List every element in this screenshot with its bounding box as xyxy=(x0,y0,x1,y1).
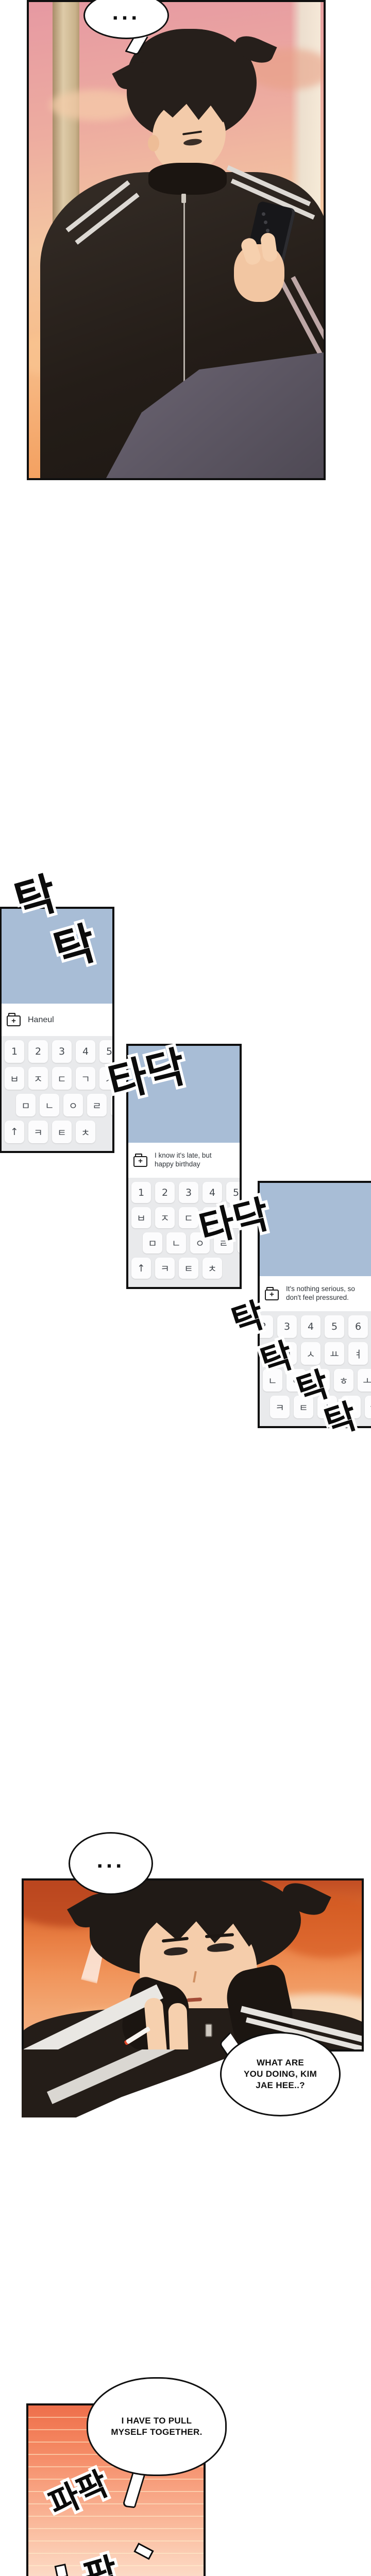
keyboard-key: 2 xyxy=(28,1040,48,1063)
keyboard-row-numbers: 12345 xyxy=(5,1040,112,1063)
keyboard-key: ㄷ xyxy=(52,1067,72,1090)
keyboard-key: ㅌ xyxy=(179,1258,198,1279)
zipper-pull xyxy=(181,194,186,203)
attachment-folder-icon xyxy=(7,1015,21,1026)
speech-bubble-ellipsis-2: ... xyxy=(69,1832,153,1895)
korean-keyboard: 12345 ㅂㅈㄷㄱㅅ ㅁㄴㅇㄹㅎ ↑ㅋㅌㅊ xyxy=(2,1036,112,1151)
message-input-bar: It's nothing serious, so don't feel pres… xyxy=(260,1276,371,1311)
keyboard-key: 4 xyxy=(301,1315,321,1338)
keyboard-key: ㅌ xyxy=(52,1121,72,1143)
keyboard-key: ㅛ xyxy=(325,1342,344,1365)
keyboard-key: 2 xyxy=(155,1182,175,1203)
panel-sunset-wide xyxy=(27,0,326,480)
keyboard-key: ㅗ xyxy=(358,1369,371,1392)
keyboard-key: ㅠ xyxy=(365,1396,371,1418)
keyboard-key: ㅋ xyxy=(270,1396,290,1418)
keyboard-key: ㄱ xyxy=(76,1067,95,1090)
keyboard-key: ㅋ xyxy=(28,1121,48,1143)
jacket-overflow xyxy=(22,2049,248,2117)
keyboard-row: ㅁㄴㅇㄹㅎ xyxy=(16,1094,112,1116)
zipper-pull xyxy=(205,2024,212,2037)
typed-message: I know it's late, but happy birthday xyxy=(155,1151,212,1169)
keyboard-key: ㅂ xyxy=(5,1067,24,1090)
keyboard-key: 1 xyxy=(5,1040,24,1063)
keyboard-key: ㅎ xyxy=(334,1369,353,1392)
keyboard-key: ㄹ xyxy=(87,1094,107,1116)
character-ear xyxy=(148,135,159,151)
keyboard-key: ㄴ xyxy=(166,1232,186,1253)
panel-face-closeup xyxy=(22,1878,364,2052)
hand-finger xyxy=(168,2003,189,2052)
speech-bubble-question: WHAT ARE YOU DOING, KIM JAE HEE..? xyxy=(220,2032,341,2116)
jacket-collar xyxy=(148,163,227,195)
typed-message: It's nothing serious, so don't feel pres… xyxy=(286,1285,355,1302)
keyboard-key: ㅋ xyxy=(155,1258,175,1279)
keyboard-key: ↑ xyxy=(5,1121,24,1143)
keyboard-row-shift: ↑ㅋㅌㅊ xyxy=(5,1121,112,1143)
keyboard-key: ㅁ xyxy=(16,1094,36,1116)
phone-camera-dots xyxy=(262,212,265,216)
keyboard-key: 1 xyxy=(131,1182,151,1203)
keyboard-row-shift: ↑ㅋㅌㅊ xyxy=(131,1258,240,1279)
ellipsis-text: ... xyxy=(97,1857,125,1863)
keyboard-key: ↑ xyxy=(131,1258,151,1279)
keyboard-key: ㅈ xyxy=(28,1067,48,1090)
message-input-bar: I know it's late, but happy birthday xyxy=(128,1143,240,1178)
attachment-folder-icon xyxy=(265,1290,279,1300)
attachment-folder-icon xyxy=(133,1156,147,1167)
keyboard-row: ㅂㅈㄷㄱㅅ xyxy=(5,1067,112,1090)
keyboard-key: 3 xyxy=(52,1040,72,1063)
message-input-bar: Haneul xyxy=(2,1004,112,1036)
keyboard-key: ㅈ xyxy=(155,1207,175,1228)
webtoon-page: ... 탁탁 탁탁 Haneul 12345 ㅂㅈㄷㄱㅅ ㅁㄴㅇㄹㅎ ↑ㅋㅌㅊ … xyxy=(0,0,371,2576)
keyboard-key: ㅊ xyxy=(76,1121,95,1143)
keyboard-key: 5 xyxy=(325,1315,344,1338)
keyboard-key: 6 xyxy=(348,1315,368,1338)
speech-bubble-resolve: I HAVE TO PULL MYSELF TOGETHER. xyxy=(87,2377,227,2476)
typed-message: Haneul xyxy=(28,1015,54,1025)
keyboard-key: ㅇ xyxy=(63,1094,83,1116)
ellipsis-text: ... xyxy=(112,9,141,15)
keyboard-key: 4 xyxy=(76,1040,95,1063)
keyboard-key: ㄴ xyxy=(40,1094,59,1116)
keyboard-key: ㅕ xyxy=(348,1342,368,1365)
chat-area xyxy=(260,1183,371,1276)
keyboard-key: ㅊ xyxy=(203,1258,222,1279)
keyboard-key: ㅁ xyxy=(143,1232,162,1253)
keyboard-key: ㅂ xyxy=(131,1207,151,1228)
